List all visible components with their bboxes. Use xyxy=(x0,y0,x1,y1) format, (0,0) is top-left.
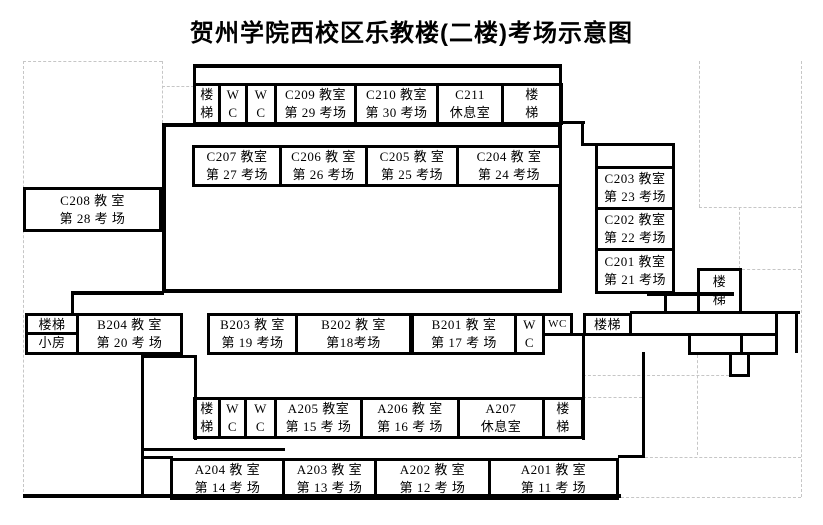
room-label: 第 27 考场 xyxy=(206,166,268,184)
room-label: C207 教室 xyxy=(207,148,268,166)
grid-line xyxy=(23,61,162,62)
wall-segment xyxy=(25,332,79,335)
exam-room-C207: C207 教室第 27 考场 xyxy=(192,145,282,187)
room-label: C xyxy=(525,334,534,352)
room-label: C205 教 室 xyxy=(380,148,445,166)
room-label: C211 xyxy=(455,86,485,104)
grid-line xyxy=(699,61,700,207)
room-label: A206 教 室 xyxy=(377,400,442,418)
room-label: 梯 xyxy=(200,104,214,122)
room-label: B203 教 室 xyxy=(220,316,285,334)
room-label: 楼 xyxy=(556,400,570,418)
room-label: 第 30 考场 xyxy=(365,104,427,122)
grid-line xyxy=(697,355,698,455)
exam-room-C202: C202 教室第 22 考场 xyxy=(595,207,675,251)
grid-line xyxy=(801,61,802,497)
room-label: A207 xyxy=(486,400,517,418)
wall-segment xyxy=(194,355,197,440)
wall-outline xyxy=(729,352,750,377)
room-label: C202 教室 xyxy=(605,211,666,229)
room-label: 第 26 考场 xyxy=(292,166,354,184)
grid-line xyxy=(162,61,163,123)
room-label: W xyxy=(254,400,267,418)
wall-segment xyxy=(141,456,173,459)
room-label: A203 教 室 xyxy=(297,461,362,479)
room-label: C206 教 室 xyxy=(291,148,356,166)
grid-line xyxy=(739,207,740,269)
room-label: C204 教 室 xyxy=(477,148,542,166)
room-label: 第 17 考 场 xyxy=(431,334,497,352)
room-label: A201 教 室 xyxy=(521,461,586,479)
room-label: 楼 xyxy=(200,86,214,104)
room-label: 第 25 考场 xyxy=(381,166,443,184)
wall-segment xyxy=(642,352,645,458)
wall-segment xyxy=(595,143,598,168)
room-label: A205 教室 xyxy=(288,400,350,418)
exam-room-C206: C206 教 室第 26 考场 xyxy=(279,145,368,187)
room-label: 休息室 xyxy=(481,418,522,436)
room-label: 第 23 考场 xyxy=(604,188,666,206)
wall-segment xyxy=(775,311,778,355)
room-label: W xyxy=(226,400,239,418)
room-label: 第 22 考场 xyxy=(604,229,666,247)
exam-room-B204: B204 教 室第 20 考 场 xyxy=(76,313,183,355)
wall-segment xyxy=(672,143,675,168)
room-label: C xyxy=(228,418,237,436)
wall-segment xyxy=(193,64,196,125)
stairs-stair-mid: 楼梯 xyxy=(697,268,742,314)
exam-room-B203: B203 教 室第 19 考场 xyxy=(207,313,298,355)
room-label: C xyxy=(256,418,265,436)
wall-segment xyxy=(559,64,562,125)
stairs-stair-al: 楼梯 xyxy=(193,397,221,439)
wc-wc-t2: WC xyxy=(245,83,277,125)
room-label: C xyxy=(228,104,237,122)
room-label: 楼梯 xyxy=(594,316,621,334)
exam-room-C209: C209 教室第 29 考场 xyxy=(274,83,357,125)
room-label: B204 教 室 xyxy=(97,316,162,334)
grid-line xyxy=(583,397,642,398)
room-label: C203 教室 xyxy=(605,170,666,188)
exam-room-B202: B202 教 室第18考场 xyxy=(295,313,412,355)
exam-room-C204: C204 教 室第 24 考场 xyxy=(456,145,562,187)
wc-wc-t1: WC xyxy=(218,83,248,125)
room-label: 第 20 考 场 xyxy=(97,334,163,352)
floor-plan-diagram: 贺州学院西校区乐教楼(二楼)考场示意图 楼梯WCWCC209 教室第 29 考场… xyxy=(0,0,823,525)
exam-room-A205: A205 教室第 15 考 场 xyxy=(274,397,363,439)
wall-segment xyxy=(568,333,777,336)
wall-segment xyxy=(141,355,144,497)
room-label: 第 24 考场 xyxy=(478,166,540,184)
grid-line xyxy=(583,375,729,376)
room-label: B202 教 室 xyxy=(321,316,386,334)
room-label: C201 教室 xyxy=(605,253,666,271)
grid-line xyxy=(742,269,801,270)
wall-segment xyxy=(141,448,285,451)
wall-segment xyxy=(647,292,734,296)
stairs-stair-ar: 楼梯 xyxy=(542,397,584,439)
room-label: C208 教 室 xyxy=(60,192,125,210)
exam-room-C201: C201 教室第 21 考场 xyxy=(595,248,675,294)
room-label: 梯 xyxy=(525,104,539,122)
room-label: 第 16 考 场 xyxy=(377,418,443,436)
page-title: 贺州学院西校区乐教楼(二楼)考场示意图 xyxy=(0,13,823,48)
room-label: 楼 xyxy=(525,86,539,104)
room-label: 梯 xyxy=(200,418,214,436)
room-label: 休息室 xyxy=(450,104,491,122)
wall-segment xyxy=(23,494,621,498)
exam-room-A206: A206 教 室第 16 考 场 xyxy=(360,397,460,439)
room-label: C xyxy=(256,104,265,122)
room-label: W xyxy=(255,86,268,104)
rest-room-A207: A207休息室 xyxy=(457,397,545,439)
room-label: 楼 xyxy=(713,273,727,291)
exam-room-C203: C203 教室第 23 考场 xyxy=(595,166,675,210)
room-label: 楼 xyxy=(200,400,214,418)
stairs-stair-tl: 楼梯 xyxy=(193,83,221,125)
wall-segment xyxy=(795,311,798,353)
wc-wc-a1: WC xyxy=(218,397,247,439)
room-label: W xyxy=(523,316,536,334)
grid-line xyxy=(699,207,801,208)
wall-segment xyxy=(618,455,645,458)
room-label: 小房 xyxy=(38,334,65,352)
room-label: B201 教 室 xyxy=(432,316,497,334)
room-label: 第18考场 xyxy=(326,334,381,352)
room-label: C210 教室 xyxy=(366,86,427,104)
exam-room-C208: C208 教 室第 28 考 场 xyxy=(23,187,162,232)
room-label: 第 15 考 场 xyxy=(286,418,352,436)
room-label: 第 28 考 场 xyxy=(60,210,126,228)
wc-wc-a2: WC xyxy=(244,397,277,439)
room-label: A202 教 室 xyxy=(400,461,465,479)
stairs-stair-tr: 楼梯 xyxy=(501,83,563,125)
wall-segment xyxy=(71,291,74,315)
wall-segment xyxy=(71,291,164,295)
wall-segment xyxy=(141,355,196,358)
exam-room-C205: C205 教 室第 25 考场 xyxy=(365,145,459,187)
wall-segment xyxy=(193,64,562,68)
room-label: 第 19 考场 xyxy=(221,334,283,352)
exam-room-C210: C210 教室第 30 考场 xyxy=(354,83,439,125)
exam-room-B201: B201 教 室第 17 考 场 xyxy=(411,313,517,355)
room-label: W xyxy=(227,86,240,104)
grid-line xyxy=(23,61,24,497)
room-label: 梯 xyxy=(556,418,570,436)
room-label: 第 21 考场 xyxy=(604,271,666,289)
wall-segment xyxy=(688,352,777,355)
grid-line xyxy=(621,497,801,498)
rest-room-C211: C211休息室 xyxy=(436,83,504,125)
room-label: WC xyxy=(548,317,567,332)
grid-line xyxy=(162,86,194,87)
wall-segment xyxy=(582,335,585,440)
wc-wc-b1: WC xyxy=(514,313,545,355)
grid-line xyxy=(645,457,801,458)
room-label: A204 教 室 xyxy=(195,461,260,479)
room-label: 第 29 考场 xyxy=(284,104,346,122)
room-label: C209 教室 xyxy=(285,86,346,104)
